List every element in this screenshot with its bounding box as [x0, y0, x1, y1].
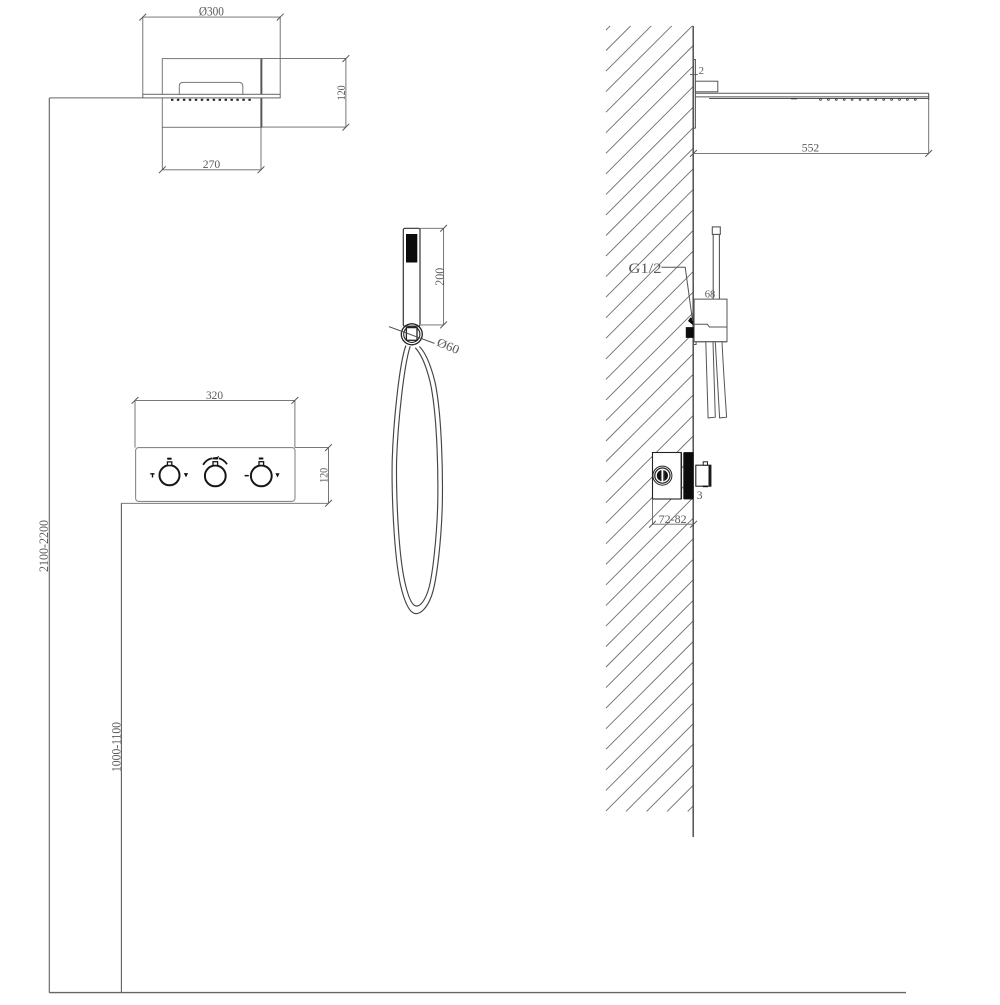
svg-text:2: 2: [699, 65, 705, 77]
svg-text:120: 120: [319, 468, 331, 483]
svg-text:68: 68: [705, 290, 716, 301]
svg-text:200: 200: [433, 268, 447, 286]
svg-text:G1/2: G1/2: [629, 261, 662, 277]
svg-text:Ø300: Ø300: [199, 5, 224, 19]
svg-text:1000-1100: 1000-1100: [108, 722, 123, 772]
svg-text:3: 3: [697, 490, 703, 502]
svg-text:320: 320: [206, 388, 223, 402]
svg-text:270: 270: [203, 157, 221, 171]
svg-text:120: 120: [336, 85, 348, 100]
svg-text:2100-2200: 2100-2200: [36, 520, 51, 572]
svg-text:552: 552: [802, 141, 820, 155]
svg-text:72-82: 72-82: [659, 514, 687, 526]
